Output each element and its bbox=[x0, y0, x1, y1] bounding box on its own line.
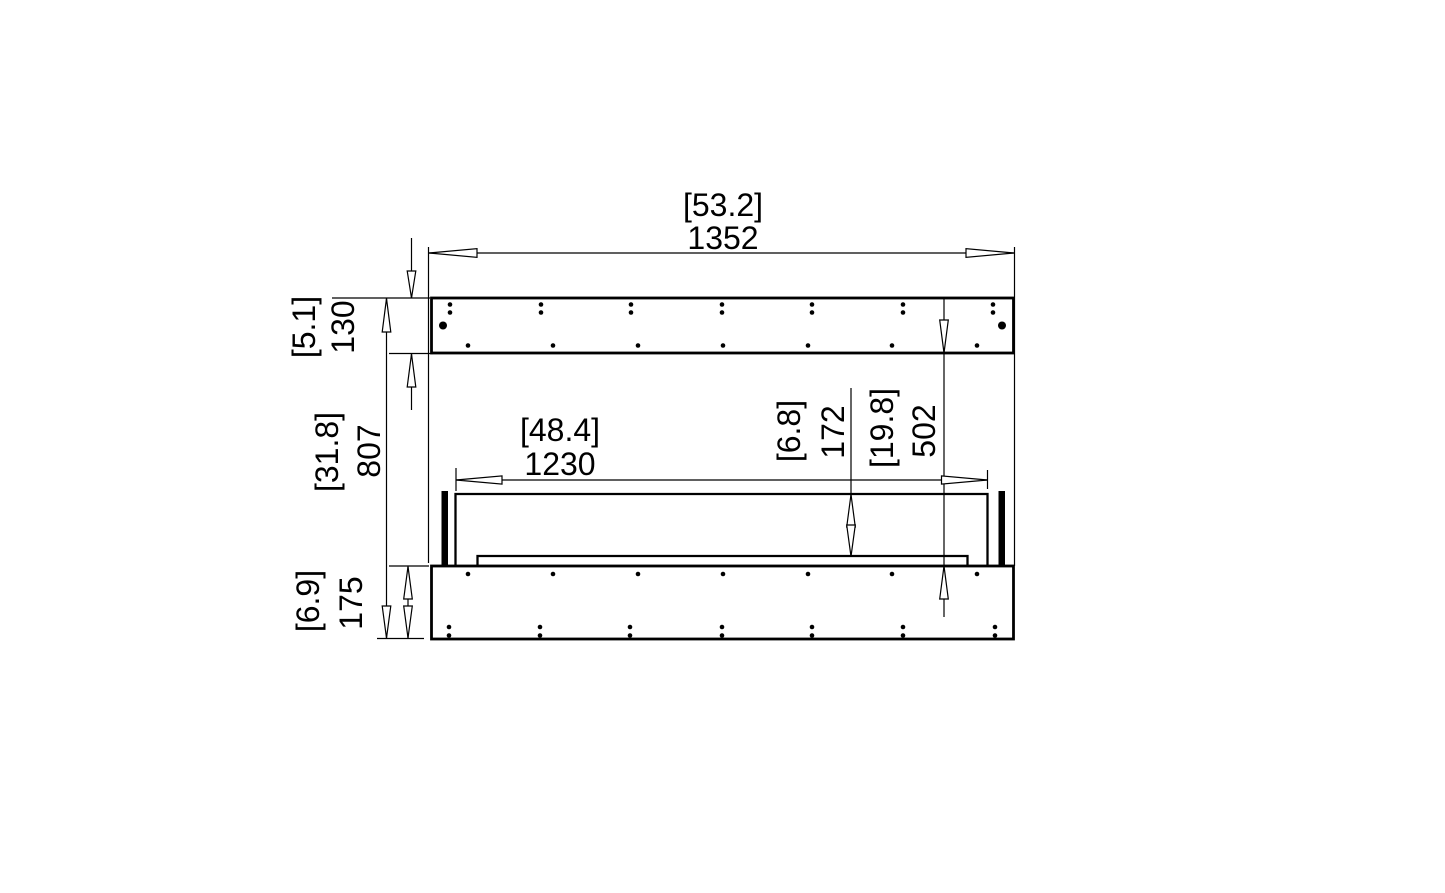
fastener-dot bbox=[466, 572, 471, 577]
fastener-dot bbox=[806, 343, 811, 348]
label-base-height-in: [6.9] bbox=[290, 570, 326, 632]
fastener-dot bbox=[890, 572, 895, 577]
arrow-1230-left bbox=[456, 476, 502, 484]
arrow-1352-right bbox=[966, 249, 1014, 258]
fastener-dot bbox=[629, 310, 634, 315]
fastener-dot bbox=[975, 572, 980, 577]
fastener-dot bbox=[810, 625, 815, 630]
arrow-175-down bbox=[404, 606, 413, 638]
fastener-dot bbox=[890, 343, 895, 348]
fastener-dot bbox=[628, 625, 633, 630]
fastener-dot bbox=[551, 572, 556, 577]
fastener-dot bbox=[720, 633, 725, 638]
fastener-dot bbox=[720, 310, 725, 315]
fastener-dot bbox=[810, 302, 815, 307]
fastener-dot bbox=[539, 302, 544, 307]
label-base-height-mm: 175 bbox=[333, 576, 369, 629]
fastener-dot bbox=[448, 302, 453, 307]
fastener-dot bbox=[993, 633, 998, 638]
label-opening-height-in: [19.8] bbox=[864, 388, 900, 468]
fastener-dot bbox=[810, 310, 815, 315]
fastener-dot bbox=[975, 343, 980, 348]
label-overall-height-in: [31.8] bbox=[309, 412, 345, 492]
arrow-130-down bbox=[407, 271, 416, 298]
fastener-dot bbox=[439, 322, 447, 330]
fastener-dot bbox=[629, 302, 634, 307]
fastener-dot bbox=[448, 310, 453, 315]
fastener-dot bbox=[806, 572, 811, 577]
fastener-dot bbox=[901, 625, 906, 630]
label-top-flange-mm: 130 bbox=[325, 300, 361, 353]
arrow-807-up bbox=[382, 299, 391, 333]
fastener-dot bbox=[538, 625, 543, 630]
fastener-dot bbox=[993, 625, 998, 630]
technical-drawing: [53.2] 1352 [5.1] 130 [31.8] 807 [6.9] 1… bbox=[0, 0, 1445, 893]
fastener-dot bbox=[636, 572, 641, 577]
label-overall-width-in: [53.2] bbox=[683, 187, 763, 223]
label-firebox-height-mm: 172 bbox=[815, 405, 851, 458]
arrow-1230-right bbox=[942, 476, 988, 484]
fastener-dot bbox=[636, 343, 641, 348]
fastener-dot bbox=[810, 633, 815, 638]
label-top-flange-in: [5.1] bbox=[286, 296, 322, 358]
fastener-dot bbox=[991, 302, 996, 307]
drawing-canvas: [53.2] 1352 [5.1] 130 [31.8] 807 [6.9] 1… bbox=[0, 0, 1445, 893]
fastener-dot bbox=[539, 310, 544, 315]
fastener-dot bbox=[466, 343, 471, 348]
fastener-dot bbox=[901, 310, 906, 315]
fastener-dot bbox=[447, 633, 452, 638]
arrow-502-up bbox=[940, 566, 949, 599]
fastener-dot bbox=[991, 310, 996, 315]
arrow-502-down bbox=[940, 320, 949, 353]
label-firebox-height-in: [6.8] bbox=[771, 400, 807, 462]
fastener-dot bbox=[721, 343, 726, 348]
fastener-dot bbox=[901, 302, 906, 307]
fastener-dot bbox=[720, 625, 725, 630]
fireplace-structure bbox=[432, 298, 1014, 639]
label-overall-width-mm: 1352 bbox=[687, 220, 758, 256]
arrow-172-up bbox=[847, 495, 856, 528]
arrow-807-down bbox=[382, 606, 391, 638]
burner-tray bbox=[478, 556, 968, 566]
label-opening-height-mm: 502 bbox=[906, 404, 942, 457]
arrow-175-up bbox=[404, 567, 413, 600]
left-glass-panel bbox=[442, 491, 449, 566]
fastener-dot bbox=[901, 633, 906, 638]
arrow-130-up bbox=[407, 354, 416, 387]
fastener-dot bbox=[538, 633, 543, 638]
label-overall-height-mm: 807 bbox=[351, 424, 387, 477]
fastener-dot bbox=[447, 625, 452, 630]
fastener-dot bbox=[998, 322, 1006, 330]
right-glass-panel bbox=[999, 491, 1006, 566]
label-firebox-width-mm: 1230 bbox=[524, 446, 595, 482]
fastener-dot bbox=[551, 343, 556, 348]
label-firebox-width-in: [48.4] bbox=[520, 412, 600, 448]
fastener-dot bbox=[628, 633, 633, 638]
arrow-1352-left bbox=[429, 249, 477, 258]
fastener-dot bbox=[721, 572, 726, 577]
fastener-dot bbox=[720, 302, 725, 307]
arrow-172-down bbox=[847, 525, 856, 557]
